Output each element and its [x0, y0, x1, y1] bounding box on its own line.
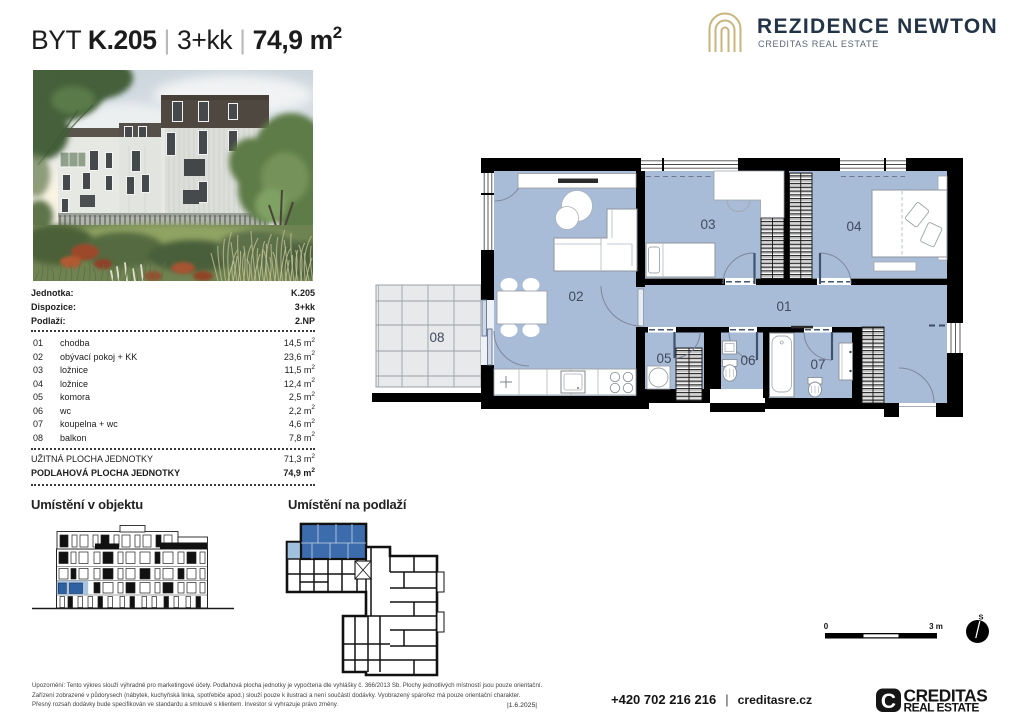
svg-text:01: 01 [776, 299, 791, 314]
svg-text:05: 05 [656, 351, 671, 366]
svg-text:0: 0 [824, 622, 829, 631]
svg-text:REAL ESTATE: REAL ESTATE [904, 701, 980, 714]
svg-text:07: 07 [810, 357, 825, 372]
svg-text:03: 03 [700, 217, 715, 232]
svg-text:02: 02 [568, 289, 583, 304]
svg-text:C: C [881, 690, 896, 713]
svg-text:08: 08 [429, 330, 444, 345]
svg-text:04: 04 [846, 219, 862, 234]
svg-text:06: 06 [740, 353, 755, 368]
svg-text:3 m: 3 m [929, 622, 943, 631]
svg-text:S: S [978, 613, 983, 622]
